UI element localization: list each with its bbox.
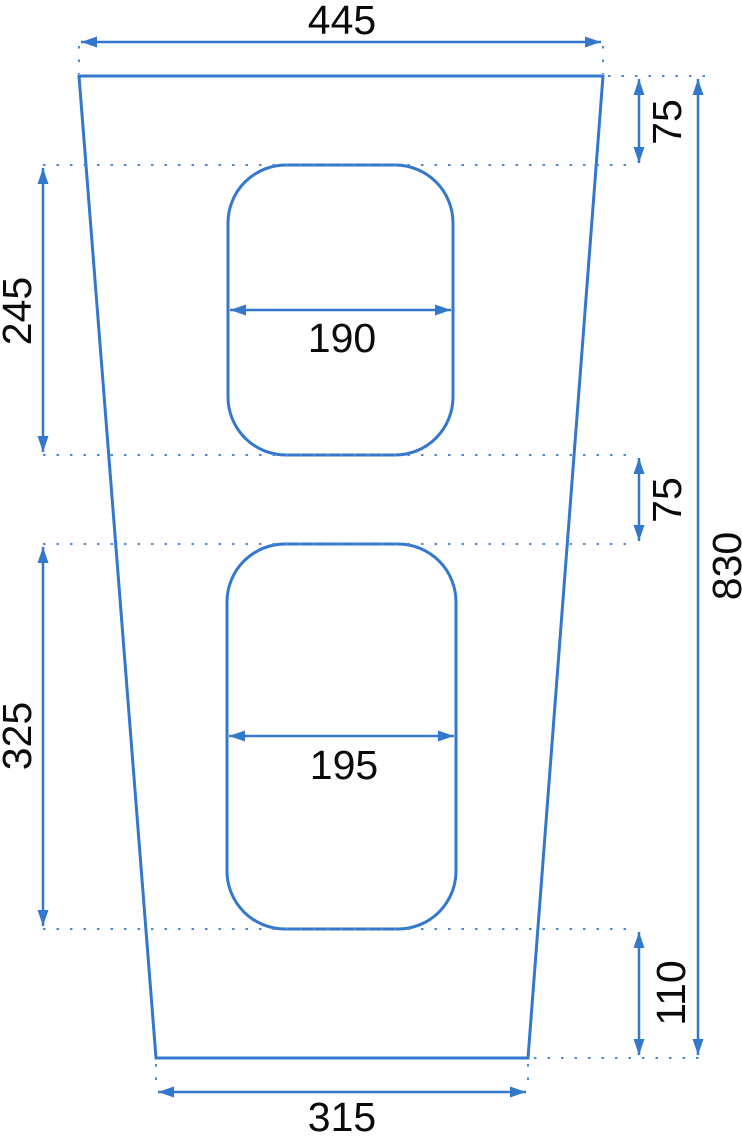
dim-label-bottom-inset: 110: [648, 960, 694, 1025]
extension-lines: [43, 46, 706, 1090]
panel-outline: [79, 76, 603, 1058]
dim-label-overall-height: 830: [704, 532, 742, 600]
dim-label-lower-cutout-height: 325: [0, 702, 40, 770]
dim-label-top-width: 445: [308, 0, 376, 43]
technical-drawing-page: 445 75 245 190 75 830 325 195 110 315: [0, 0, 742, 1137]
dim-label-upper-cutout-width: 190: [308, 315, 376, 361]
dimension-lines: [43, 42, 698, 1092]
dim-label-lower-cutout-width: 195: [310, 742, 378, 788]
technical-drawing-canvas: 445 75 245 190 75 830 325 195 110 315: [0, 0, 742, 1137]
panel-trapezoid: [79, 76, 603, 1058]
dimension-labels: 445 75 245 190 75 830 325 195 110 315: [0, 0, 742, 1137]
dim-label-bottom-width: 315: [308, 1094, 376, 1137]
dim-label-gap: 75: [644, 477, 690, 523]
dim-label-top-inset: 75: [644, 99, 690, 145]
dim-label-upper-cutout-height: 245: [0, 277, 40, 345]
